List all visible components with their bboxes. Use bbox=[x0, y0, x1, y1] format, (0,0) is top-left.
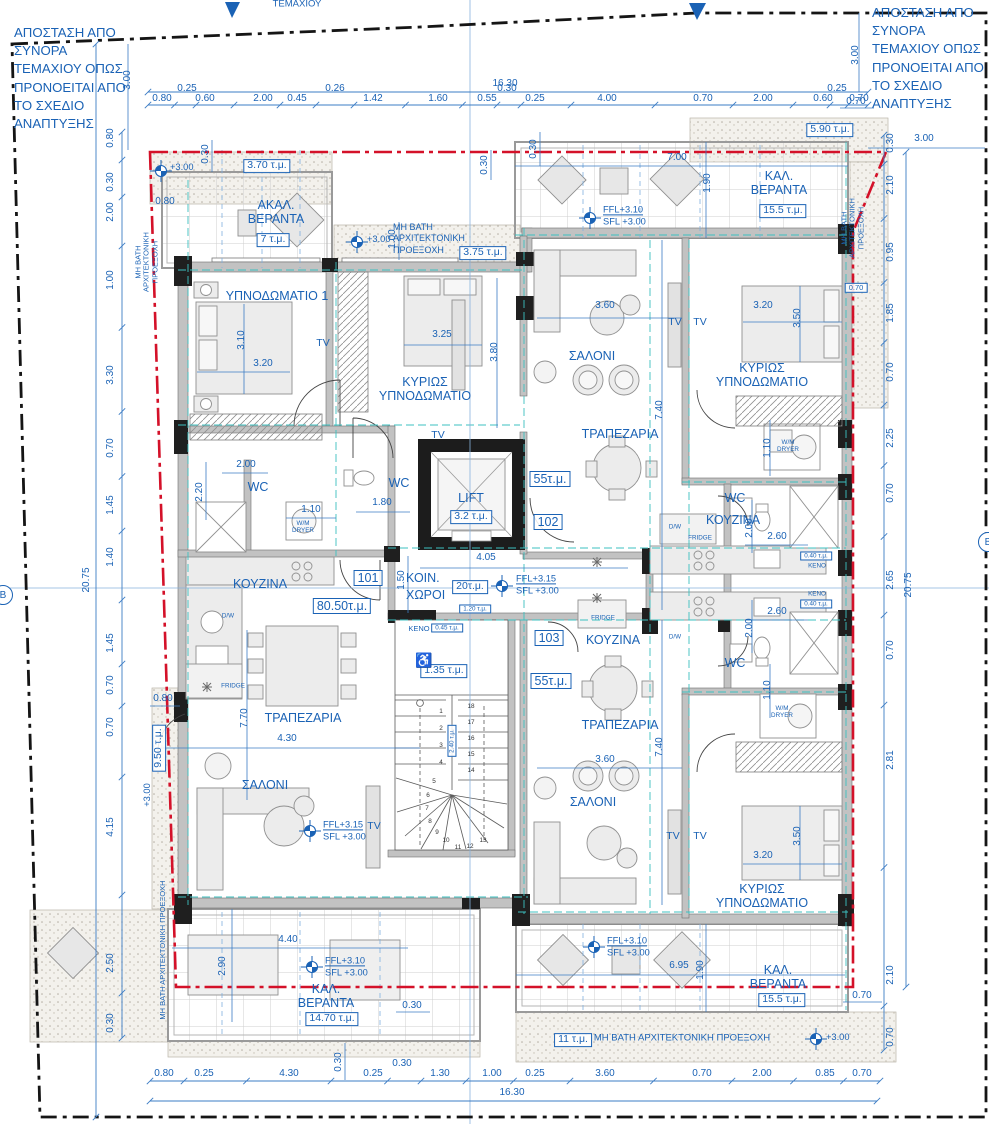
dim-label: 0.70 bbox=[852, 990, 872, 1001]
ffl-value: FFL+3.15 bbox=[516, 573, 556, 584]
offset-070-box: 0.70 bbox=[845, 283, 868, 293]
tv-label-6: TV bbox=[666, 831, 679, 843]
dim-label: 1.45 bbox=[105, 495, 116, 515]
dim-label: 3.20 bbox=[753, 850, 773, 861]
dim-label: 2.00 bbox=[744, 618, 755, 638]
dim-label: 2.20 bbox=[194, 482, 205, 502]
room-salon-102: ΣΑΛΟΝΙ bbox=[569, 349, 615, 363]
dim-label: 1.10 bbox=[762, 680, 773, 700]
dim-label: 18 bbox=[467, 703, 475, 710]
dim-label: 0.60 bbox=[195, 93, 215, 104]
dim-label: 7.40 bbox=[654, 737, 665, 757]
dim-label: 0.30 bbox=[528, 139, 539, 159]
ffl-value: FFL+3.15 bbox=[323, 819, 363, 830]
dim-label: 0.30 bbox=[885, 133, 896, 153]
level-ffl-salon101: FFL+3.15SFL +3.00 bbox=[323, 819, 366, 842]
dim-label: 11 bbox=[455, 844, 462, 851]
dim-label: 0.25 bbox=[194, 1068, 214, 1079]
dim-label: 6.95 bbox=[669, 960, 689, 971]
keno-label-r2: ΚΕΝΟ bbox=[808, 590, 826, 597]
unit-area-102: 55τ.μ. bbox=[530, 471, 571, 487]
dim-label: 4.30 bbox=[277, 733, 297, 744]
dim-label: 17 bbox=[467, 719, 475, 726]
veranda-br-label: ΚΑΛ. ΒΕΡΑΝΤΑ bbox=[739, 963, 817, 991]
dim-label: 3.60 bbox=[595, 754, 615, 765]
dim-label: 3.50 bbox=[792, 826, 803, 846]
dim-chain-left: 0.800.302.001.003.300.701.451.401.450.70… bbox=[105, 128, 125, 1041]
dim-label: 4.00 bbox=[597, 93, 617, 104]
dim-label: 14 bbox=[467, 767, 475, 774]
dim-label: 2.00 bbox=[752, 1068, 772, 1079]
fridge-label-103: FRIDGE bbox=[591, 614, 615, 621]
floor-plan-canvas: 0.800.250.602.000.450.261.421.600.550.30… bbox=[0, 0, 989, 1124]
unit-number-101: 101 bbox=[354, 570, 383, 586]
keno-area-c: 0.45 τ.μ. bbox=[431, 623, 463, 632]
dim-label: 3.30 bbox=[105, 365, 116, 385]
dim-label: 0.70 bbox=[692, 1068, 712, 1079]
tv-label-2: TV bbox=[431, 430, 444, 442]
dim-label: 20.75 bbox=[81, 567, 92, 592]
level-plus300-akal: +3.00 bbox=[170, 162, 194, 174]
dim-label: 0.30 bbox=[200, 144, 211, 164]
dim-label: 2.10 bbox=[885, 965, 896, 985]
dim-label: 0.60 bbox=[813, 93, 833, 104]
unit-area-103: 55τ.μ. bbox=[531, 673, 572, 689]
projection-note-left-bottom: ΜΗ ΒΑΤΗ ΑΡΧΙΤΕΚΤΟΝΙΚΗ ΠΡΟΕΞΟΧΗ bbox=[159, 880, 167, 1019]
dim-label: 7.40 bbox=[654, 400, 665, 420]
dim-label: 0.80 bbox=[153, 693, 173, 704]
projection-note-right-top: ΜΗ ΒΑΤΗ ΑΡΧΙΤΕΚΤΟΝΙΚΗ ΠΡΟΕΞΟΧΗ bbox=[840, 188, 865, 268]
room-wc-103: WC bbox=[725, 656, 746, 670]
lift-area: 3.2 τ.μ. bbox=[450, 510, 492, 524]
dim-label: 0.30 bbox=[402, 1000, 422, 1011]
keno-area-r1: 0.40 τ.μ. bbox=[800, 551, 832, 560]
dim-label: 0.70 bbox=[885, 1027, 896, 1047]
common-area: 20τ.μ. bbox=[452, 580, 488, 594]
room-master-101: ΚΥΡΙΩΣ ΥΠΝΟΔΩΜΑΤΙΟ bbox=[366, 375, 484, 403]
dim-label: 2.81 bbox=[885, 750, 896, 770]
dim-label: 0.70 bbox=[105, 717, 116, 737]
ffl-value: FFL+3.10 bbox=[325, 955, 365, 966]
dim-label: 3.60 bbox=[595, 1068, 615, 1079]
dim-overall-bottom: 16.30 bbox=[147, 1087, 880, 1104]
dim-label: 9 bbox=[435, 829, 439, 836]
room-wc-101a: WC bbox=[248, 480, 269, 494]
dim-label: 0.30 bbox=[392, 1058, 412, 1069]
dim-label: 4.05 bbox=[476, 552, 496, 563]
tv-label-5: TV bbox=[367, 821, 380, 833]
room-dining-103: ΤΡΑΠΕΖΑΡΙΑ bbox=[582, 718, 659, 732]
dim-label: 3.80 bbox=[489, 342, 500, 362]
wheelchair-icon: ♿ bbox=[415, 653, 432, 669]
dim-label: 2.60 bbox=[767, 531, 787, 542]
dim-label: 0.70 bbox=[105, 438, 116, 458]
dim-label: 3.50 bbox=[792, 308, 803, 328]
dim-label: 2.60 bbox=[767, 606, 787, 617]
dim-label: 16 bbox=[467, 735, 475, 742]
dim-label: 16.30 bbox=[499, 1087, 524, 1098]
dim-label: 6 bbox=[426, 792, 430, 799]
dim-label: 0.25 bbox=[363, 1068, 383, 1079]
dim-label: 1.60 bbox=[428, 93, 448, 104]
unit-number-103: 103 bbox=[535, 630, 564, 646]
dim-label: 0.55 bbox=[477, 93, 497, 104]
dim-label: 3.20 bbox=[253, 358, 273, 369]
ffl-value: FFL+3.10 bbox=[603, 204, 643, 215]
dim-label: 0.70 bbox=[885, 483, 896, 503]
veranda-akal-roof-area: 3.70 τ.μ. bbox=[243, 159, 290, 173]
level-ffl-verbl: FFL+3.10SFL +3.00 bbox=[325, 955, 368, 978]
tv-label-4: TV bbox=[693, 317, 706, 329]
wm-dryer-103: W/M DRYER bbox=[764, 705, 800, 719]
sfl-value: SFL +3.00 bbox=[516, 585, 559, 595]
projection-note-left-top: ΜΗ ΒΑΤΗ ΑΡΧΙΤΕΚΤΟΝΙΚΗ ΠΡΟΕΞΟΧΗ bbox=[134, 219, 159, 305]
keno-label-c: ΚΕΝΟ bbox=[408, 625, 429, 633]
dim-label: 1.45 bbox=[105, 633, 116, 653]
tv-label-1: TV bbox=[316, 338, 329, 350]
dim-label: 1.90 bbox=[695, 960, 706, 980]
dim-label: 12 bbox=[466, 843, 474, 850]
dim-label: 2 bbox=[439, 725, 443, 732]
dim-label: 1.80 bbox=[372, 497, 392, 508]
veranda-akal-label: ΑΚΑΛ. ΒΕΡΑΝΤΑ bbox=[238, 198, 314, 226]
dim-label: 0.30 bbox=[105, 172, 116, 192]
dim-label: 0.70 bbox=[846, 96, 866, 107]
dim-label: 0.70 bbox=[693, 93, 713, 104]
veranda-bl-label: ΚΑΛ. ΒΕΡΑΝΤΑ bbox=[287, 982, 365, 1010]
dim-label: 3.25 bbox=[432, 329, 452, 340]
dim-label: 3 bbox=[439, 742, 443, 749]
dim-label: 2.00 bbox=[105, 202, 116, 222]
dim-label: 2.00 bbox=[253, 93, 273, 104]
dw-label-102: D/W bbox=[669, 523, 681, 530]
dim-label: 2.00 bbox=[753, 93, 773, 104]
dim-label: 0.30 bbox=[479, 155, 490, 175]
dim-label: 20.75 bbox=[903, 572, 914, 597]
dim-label: 1.30 bbox=[430, 1068, 450, 1079]
room-master-103: ΚΥΡΙΩΣ ΥΠΝΟΔΩΜΑΤΙΟ bbox=[703, 882, 821, 910]
level-plus300-bottom: +3.00 bbox=[826, 1032, 850, 1044]
veranda-tr-area: 15.5 τ.μ. bbox=[759, 204, 806, 218]
fridge-label-102: FRIDGE bbox=[688, 534, 712, 541]
sfl-value: SFL +3.00 bbox=[607, 947, 650, 957]
projection-note-bottom: ΜΗ ΒΑΤΗ ΑΡΧΙΤΕΚΤΟΝΙΚΗ ΠΡΟΕΞΟΧΗ bbox=[594, 1034, 770, 1045]
dim-label: 0.25 bbox=[525, 93, 545, 104]
room-dining-102: ΤΡΑΠΕΖΑΡΙΑ bbox=[582, 427, 659, 441]
plot-edge-label: ΤΕΜΑΧΙΟΥ bbox=[273, 0, 322, 10]
dim-label: 0.70 bbox=[852, 1068, 872, 1079]
dim-label: 0.70 bbox=[885, 640, 896, 660]
dim-label: 1.90 bbox=[702, 173, 713, 193]
dim-label: 2.25 bbox=[885, 428, 896, 448]
dim-label: 15 bbox=[467, 751, 475, 758]
dim-label: 3.00 bbox=[850, 45, 861, 65]
keno-area-r2: 0.40 τ.μ. bbox=[800, 599, 832, 608]
floor-plan-drawing: 0.800.250.602.000.450.261.421.600.550.30… bbox=[0, 0, 989, 1124]
veranda-tr-label: ΚΑΛ. ΒΕΡΑΝΤΑ bbox=[740, 169, 818, 197]
projection-top-area: 3.75 τ.μ. bbox=[459, 246, 506, 260]
fridge-label-101: FRIDGE bbox=[221, 682, 245, 689]
room-wc-101b: WC bbox=[389, 476, 410, 490]
projection-left-area: 9.50 τ.μ. bbox=[152, 724, 166, 771]
ffl-value: FFL+3.10 bbox=[607, 935, 647, 946]
room-salon-101: ΣΑΛΟΝΙ bbox=[242, 778, 288, 792]
dim-label: 0.30 bbox=[105, 1013, 116, 1033]
level-ffl-verbr: FFL+3.10SFL +3.00 bbox=[607, 935, 650, 958]
dim-label: 0.70 bbox=[105, 675, 116, 695]
dim-label: 2.00 bbox=[236, 459, 256, 470]
keno-label-r1: ΚΕΝΟ bbox=[808, 562, 826, 569]
room-kitchen-103: ΚΟΥΖΙΝΑ bbox=[586, 633, 640, 647]
dim-label: 5 bbox=[432, 778, 436, 785]
room-lift: LIFT bbox=[458, 491, 484, 505]
dim-label: 1.85 bbox=[885, 303, 896, 323]
dim-label: 7.70 bbox=[239, 708, 250, 728]
dim-label: 2.65 bbox=[885, 570, 896, 590]
dim-overall-right: 20.75 bbox=[903, 149, 914, 990]
dw-label-101: D/W bbox=[222, 612, 234, 619]
dim-label: 3.00 bbox=[914, 133, 934, 144]
boundary-note-top-right: ΑΠΟΣΤΑΣΗ ΑΠΟ ΣΥΝΟΡΑ ΤΕΜΑΧΙΟΥ ΟΠΩΣ ΠΡΟΝΟΕ… bbox=[872, 4, 986, 113]
sfl-value: SFL +3.00 bbox=[603, 216, 646, 226]
wm-dryer-102: W/M DRYER bbox=[770, 439, 806, 453]
dim-label: 2.10 bbox=[885, 175, 896, 195]
dim-label: 3.10 bbox=[236, 330, 247, 350]
tv-label-7: TV bbox=[693, 831, 706, 843]
veranda-bl-area: 14.70 τ.μ. bbox=[305, 1012, 358, 1026]
sfl-value: SFL +3.00 bbox=[325, 967, 368, 977]
dim-label: 4.15 bbox=[105, 817, 116, 837]
level-plus300-left: +3.00 bbox=[142, 783, 154, 807]
dim-label: 0.80 bbox=[155, 196, 175, 207]
dim-label: 1.00 bbox=[105, 270, 116, 290]
dim-label: 3.60 bbox=[595, 300, 615, 311]
wm-dryer-101: W/M DRYER bbox=[285, 520, 321, 534]
level-ffl-tr: FFL+3.10SFL +3.00 bbox=[603, 204, 646, 227]
veranda-br-area: 15.5 τ.μ. bbox=[758, 993, 805, 1007]
dim-label: 0.70 bbox=[885, 362, 896, 382]
dim-label: 1.40 bbox=[105, 547, 116, 567]
projection-tr-area: 5.90 τ.μ. bbox=[806, 123, 853, 137]
dim-label: 4 bbox=[439, 759, 443, 766]
room-bedroom1: ΥΠΝΟΔΩΜΑΤΙΟ 1 bbox=[226, 289, 329, 303]
room-dining-101: ΤΡΑΠΕΖΑΡΙΑ bbox=[265, 711, 342, 725]
sfl-value: SFL +3.00 bbox=[323, 831, 366, 841]
stair-void-area: 2.40 τ.μ. bbox=[447, 725, 456, 757]
dim-label: 8 bbox=[428, 818, 432, 825]
dim-label: 1.10 bbox=[301, 504, 321, 515]
dim-label: 1 bbox=[439, 708, 443, 715]
lobby-area: 1.20 τ.μ. bbox=[459, 604, 491, 613]
dim-label: 0.30 bbox=[333, 1052, 344, 1072]
room-kitchen-102: ΚΟΥΖΙΝΑ bbox=[706, 513, 760, 527]
dim-label: 13 bbox=[479, 837, 487, 844]
dim-label: 2.50 bbox=[105, 953, 116, 973]
boundary-note-top-left: ΑΠΟΣΤΑΣΗ ΑΠΟ ΣΥΝΟΡΑ ΤΕΜΑΧΙΟΥ ΟΠΩΣ ΠΡΟΝΟΕ… bbox=[14, 24, 134, 133]
room-salon-103: ΣΑΛΟΝΙ bbox=[570, 795, 616, 809]
dim-label: 1.00 bbox=[482, 1068, 502, 1079]
dim-label: 7 bbox=[425, 805, 429, 812]
veranda-akal-area: 7 τ.μ. bbox=[257, 233, 290, 247]
dim-label: 0.85 bbox=[815, 1068, 835, 1079]
dim-label: 0.80 bbox=[152, 93, 172, 104]
room-wc-102: WC bbox=[725, 491, 746, 505]
dim-label: 0.45 bbox=[287, 93, 307, 104]
dim-label: 4.30 bbox=[279, 1068, 299, 1079]
dim-label: 0.95 bbox=[885, 242, 896, 262]
room-kitchen-101: ΚΟΥΖΙΝΑ bbox=[233, 577, 287, 591]
dim-label: 0.80 bbox=[154, 1068, 174, 1079]
dim-label: 7.00 bbox=[667, 152, 687, 163]
dim-label: 10 bbox=[442, 837, 450, 844]
dim-label: 1.42 bbox=[363, 93, 383, 104]
level-plus300-top: +3.00 bbox=[367, 234, 391, 246]
dim-label: 2.90 bbox=[217, 956, 228, 976]
unit-number-102: 102 bbox=[534, 514, 563, 530]
dw-label-103: D/W bbox=[669, 633, 681, 640]
tv-label-3: TV bbox=[668, 317, 681, 329]
dim-label: 4.40 bbox=[278, 934, 298, 945]
unit-area-101: 80.50τ.μ. bbox=[313, 598, 371, 614]
dim-label: 3.20 bbox=[753, 300, 773, 311]
projection-bottom-area: 11 τ.μ. bbox=[554, 1033, 592, 1047]
room-master-102: ΚΥΡΙΩΣ ΥΠΝΟΔΩΜΑΤΙΟ bbox=[703, 361, 821, 389]
dim-label: 0.25 bbox=[525, 1068, 545, 1079]
dim-label: 16.30 bbox=[492, 78, 517, 89]
level-ffl-corridor: FFL+3.15SFL +3.00 bbox=[516, 573, 559, 596]
